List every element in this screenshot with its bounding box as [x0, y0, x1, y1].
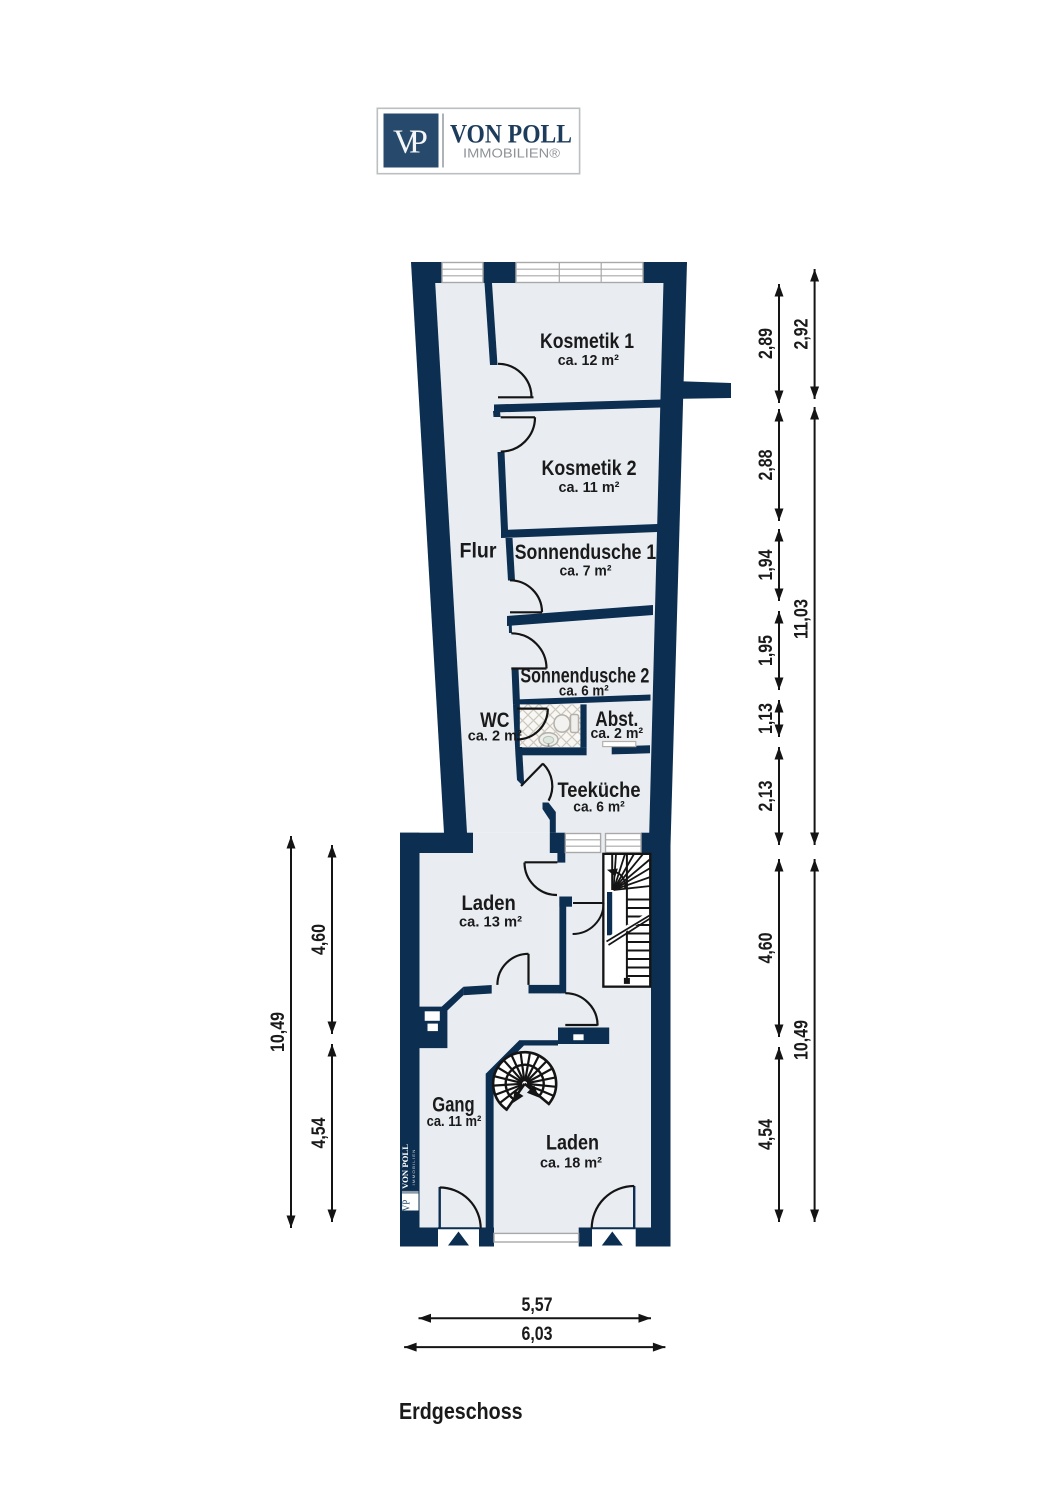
- svg-text:4,54: 4,54: [756, 1119, 777, 1150]
- svg-text:VP: VP: [402, 1200, 413, 1212]
- svg-text:Kosmetik 2: Kosmetik 2: [542, 457, 637, 480]
- svg-text:Sonnendusche 1: Sonnendusche 1: [515, 541, 657, 564]
- svg-text:IMMOBILIEN: IMMOBILIEN: [412, 1149, 416, 1186]
- svg-text:5,57: 5,57: [522, 1295, 553, 1316]
- svg-text:ca. 6 m²: ca. 6 m²: [573, 799, 625, 816]
- svg-text:4,60: 4,60: [756, 933, 777, 964]
- svg-text:Flur: Flur: [460, 540, 497, 563]
- svg-text:6,03: 6,03: [522, 1324, 553, 1345]
- svg-text:ca. 2 m²: ca. 2 m²: [590, 725, 643, 742]
- svg-text:ca. 11 m²: ca. 11 m²: [559, 479, 620, 496]
- svg-text:4,60: 4,60: [309, 924, 330, 955]
- svg-text:10,49: 10,49: [792, 1020, 813, 1060]
- svg-text:ca. 13 m²: ca. 13 m²: [459, 914, 522, 931]
- svg-text:1,13: 1,13: [756, 703, 777, 734]
- svg-text:4,54: 4,54: [309, 1117, 330, 1148]
- svg-text:P: P: [409, 124, 428, 161]
- svg-text:VON POLL: VON POLL: [450, 119, 572, 149]
- svg-text:ca. 7 m²: ca. 7 m²: [560, 563, 612, 580]
- svg-text:Kosmetik 1: Kosmetik 1: [540, 330, 634, 353]
- svg-text:ca. 2 m²: ca. 2 m²: [468, 728, 522, 745]
- svg-text:2,92: 2,92: [792, 319, 813, 350]
- svg-text:10,49: 10,49: [268, 1012, 289, 1052]
- svg-text:Erdgeschoss: Erdgeschoss: [399, 1398, 523, 1424]
- svg-text:1,94: 1,94: [756, 549, 777, 580]
- svg-text:1,95: 1,95: [756, 635, 777, 666]
- svg-text:VON POLL: VON POLL: [401, 1144, 410, 1189]
- svg-text:2,13: 2,13: [756, 781, 777, 812]
- svg-text:ca. 18 m²: ca. 18 m²: [540, 1155, 602, 1172]
- svg-text:ca. 11 m²: ca. 11 m²: [427, 1113, 482, 1130]
- svg-text:Laden: Laden: [461, 892, 515, 915]
- svg-text:ca. 6 m²: ca. 6 m²: [559, 683, 609, 700]
- svg-text:ca. 12 m²: ca. 12 m²: [558, 352, 619, 369]
- svg-text:11,03: 11,03: [792, 599, 813, 639]
- svg-text:2,88: 2,88: [756, 450, 777, 481]
- svg-text:2,89: 2,89: [756, 328, 777, 359]
- svg-text:Laden: Laden: [546, 1132, 599, 1155]
- svg-text:IMMOBILIEN®: IMMOBILIEN®: [463, 146, 560, 161]
